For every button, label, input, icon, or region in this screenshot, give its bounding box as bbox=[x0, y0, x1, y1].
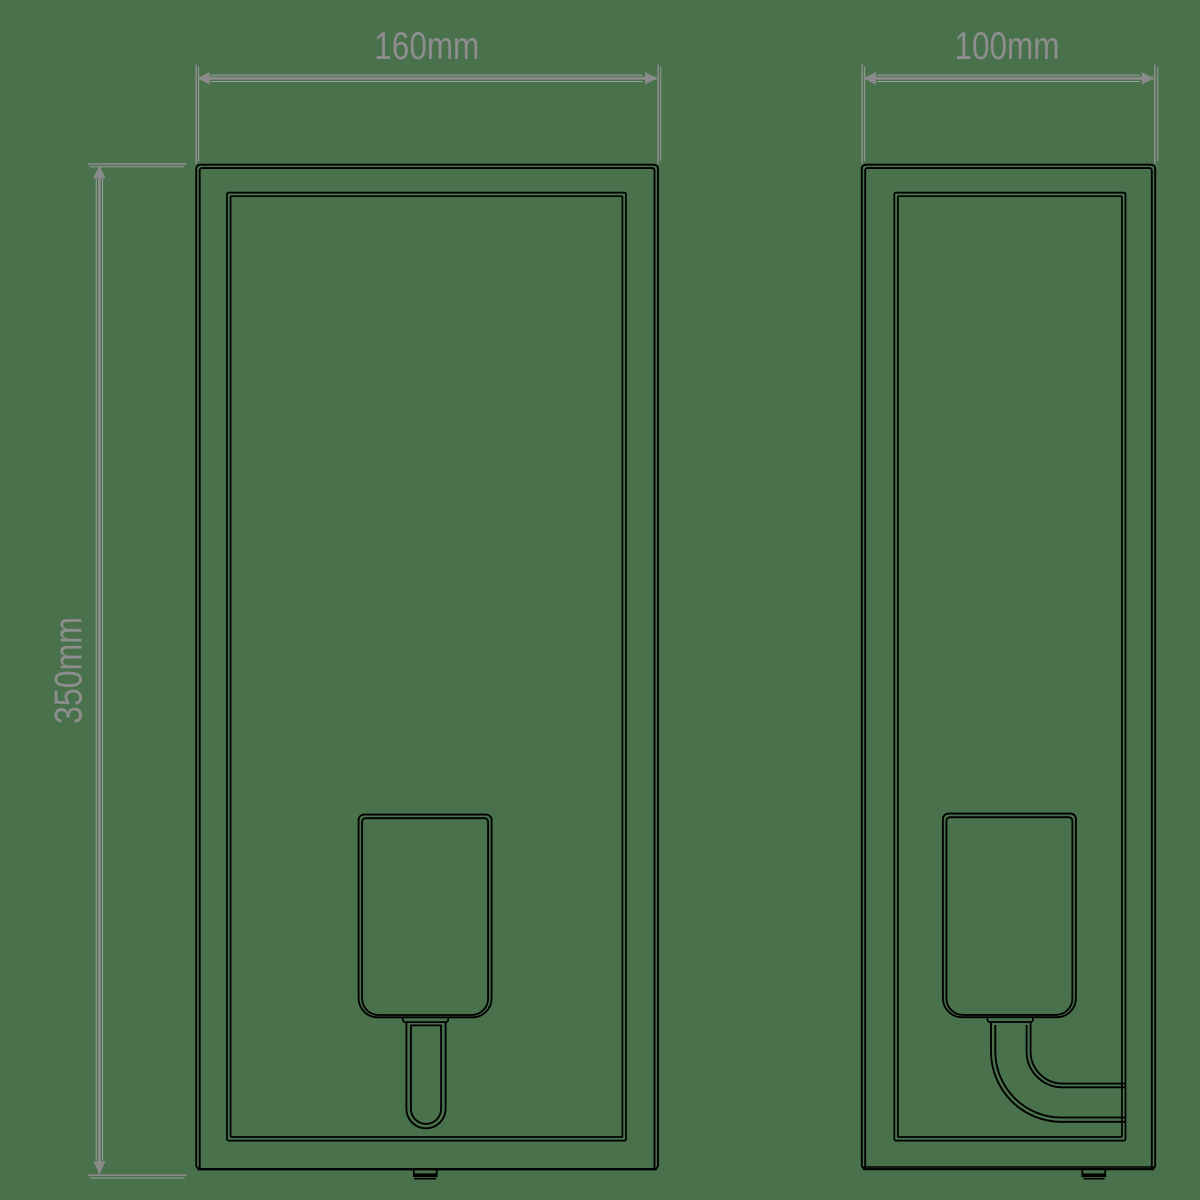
svg-text:160mm: 160mm bbox=[374, 25, 479, 68]
svg-text:100mm: 100mm bbox=[955, 25, 1060, 68]
svg-text:350mm: 350mm bbox=[48, 617, 91, 724]
